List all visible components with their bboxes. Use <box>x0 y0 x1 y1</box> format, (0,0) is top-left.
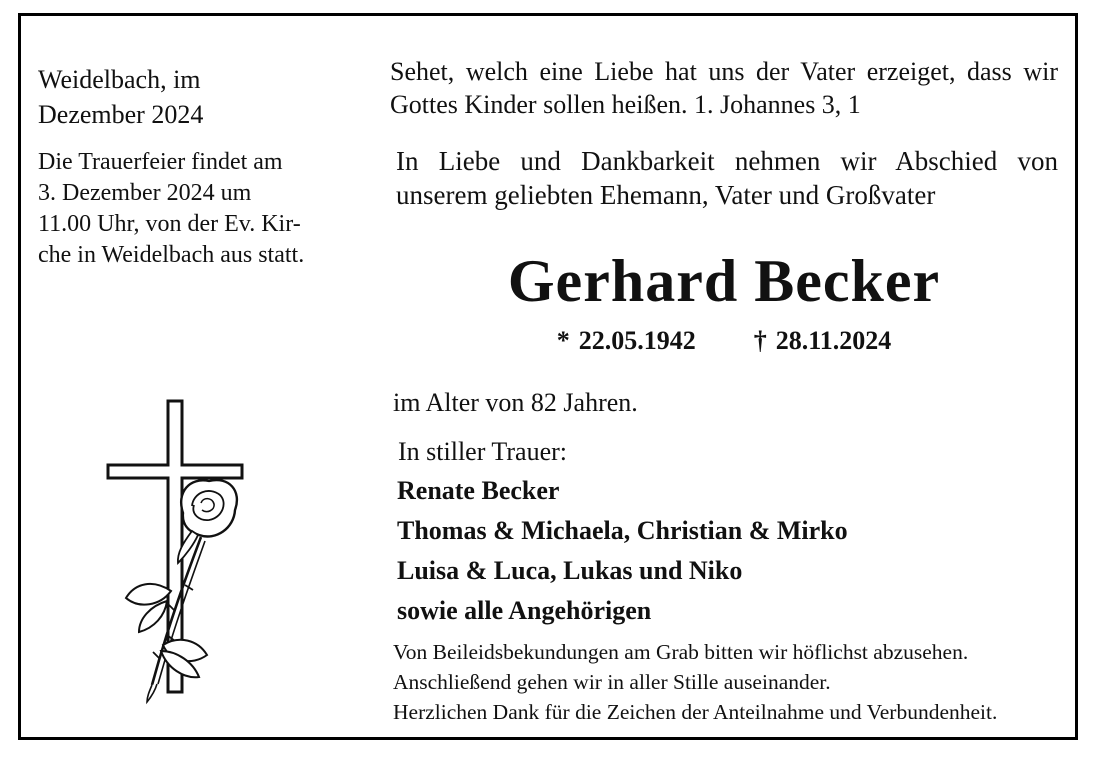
life-dates: *22.05.1942 †28.11.2024 <box>390 326 1058 356</box>
death-symbol: † <box>754 326 776 355</box>
mourners-list: Renate Becker Thomas & Michaela, Christi… <box>390 471 1058 631</box>
closing-note-line: Herzlichen Dank für die Zeichen der Ante… <box>393 697 1058 727</box>
mourner-line: Luisa & Luca, Lukas und Niko <box>397 551 1058 591</box>
notice-border: Weidelbach, im Dezember 2024 Die Trauerf… <box>18 13 1078 740</box>
service-info-line: Die Trauerfeier findet am <box>38 147 304 178</box>
scripture-quote-line: Gottes Kinder sollen heißen. 1. Johannes… <box>390 88 1058 121</box>
dateline-line: Weidelbach, im <box>38 62 203 97</box>
obituary-notice: Weidelbach, im Dezember 2024 Die Trauerf… <box>0 0 1105 763</box>
birth-date-value: 22.05.1942 <box>579 326 696 355</box>
dateline-line: Dezember 2024 <box>38 97 203 132</box>
deceased-name: Gerhard Becker <box>390 250 1058 312</box>
mourner-line: Thomas & Michaela, Christian & Mirko <box>397 511 1058 551</box>
service-info-line: che in Weidelbach aus statt. <box>38 240 304 271</box>
service-info-line: 3. Dezember 2024 um <box>38 178 304 209</box>
scripture-quote-line: Sehet, welch eine Liebe hat uns der Vate… <box>390 55 1058 88</box>
death-date-value: 28.11.2024 <box>776 326 892 355</box>
birth-date: *22.05.1942 <box>557 326 696 356</box>
dateline: Weidelbach, im Dezember 2024 <box>38 62 203 132</box>
birth-symbol: * <box>557 326 579 355</box>
mourning-label: In stiller Trauer: <box>390 437 1058 467</box>
closing-notes: Von Beileidsbekundungen am Grab bitten w… <box>390 637 1058 727</box>
age-line: im Alter von 82 Jahren. <box>390 388 1058 418</box>
farewell-intro-line: In Liebe und Dankbarkeit nehmen wir Absc… <box>396 144 1058 178</box>
closing-note-line: Anschließend gehen wir in aller Stille a… <box>393 667 1058 697</box>
cross-with-rose-icon <box>97 393 253 711</box>
closing-note-line: Von Beileidsbekundungen am Grab bitten w… <box>393 637 1058 667</box>
service-info: Die Trauerfeier findet am 3. Dezember 20… <box>38 147 304 271</box>
scripture-quote: Sehet, welch eine Liebe hat uns der Vate… <box>390 55 1058 121</box>
farewell-intro-line: unserem geliebten Ehemann, Vater und Gro… <box>396 178 1058 212</box>
death-date: †28.11.2024 <box>754 326 892 356</box>
service-info-line: 11.00 Uhr, von der Ev. Kir- <box>38 209 304 240</box>
farewell-intro: In Liebe und Dankbarkeit nehmen wir Absc… <box>390 144 1058 212</box>
mourner-line: Renate Becker <box>397 471 1058 511</box>
mourner-line: sowie alle Angehörigen <box>397 591 1058 631</box>
